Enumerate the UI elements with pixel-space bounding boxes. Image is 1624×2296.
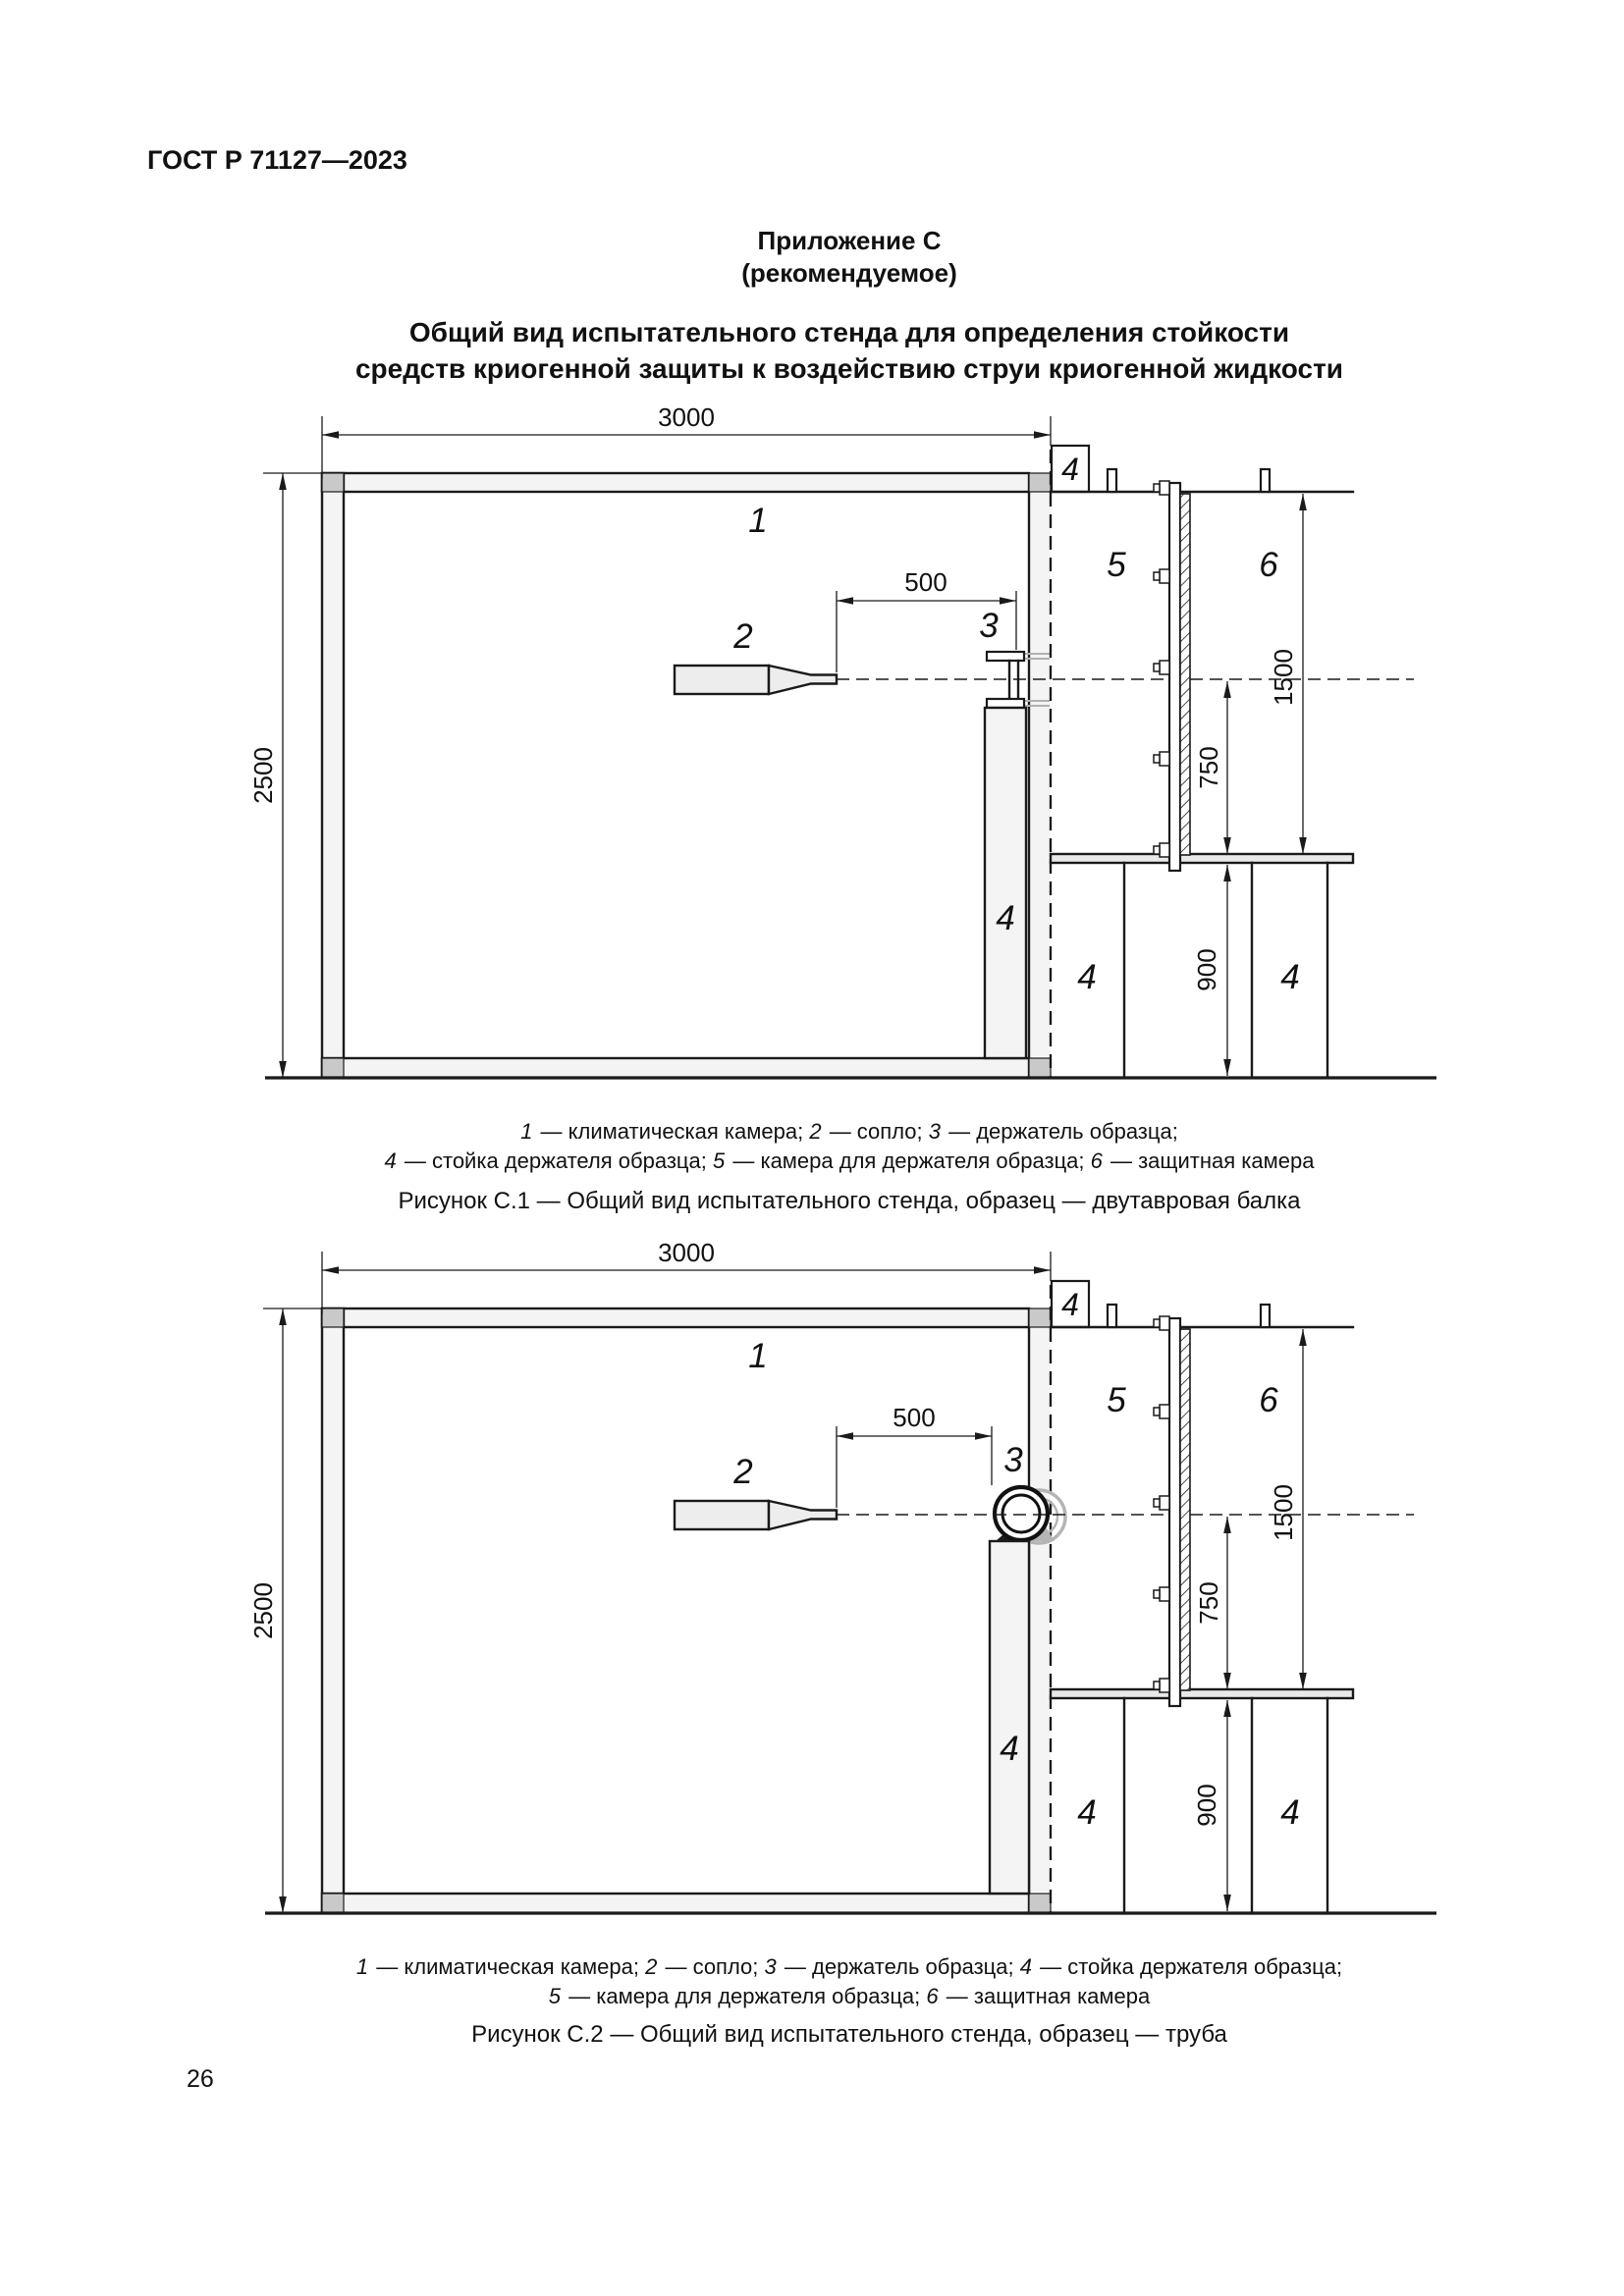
dim-chamber-width-2: 3000: [322, 1238, 1051, 1314]
shelf: [1051, 854, 1353, 863]
label-climatic-chamber: 1: [748, 502, 767, 540]
dim-table-height-2: 900: [1192, 1700, 1231, 1911]
label-holder-stand-column-2: 4: [1000, 1730, 1018, 1768]
dim-nozzle-distance-value: 500: [904, 567, 947, 597]
top-stand-bracket: 4: [1052, 446, 1089, 492]
fig1-legend: 1 — климатическая камера; 2 — сопло; 3 —…: [147, 1117, 1551, 1176]
holder-stand-column: 4: [985, 708, 1026, 1058]
dim-axis-to-shelf-2: 750: [1194, 1517, 1231, 1689]
document-page: ГОСТ Р 71127—2023 Приложение С (рекоменд…: [0, 0, 1624, 2296]
dim-axis-to-shelf: 750: [1194, 681, 1231, 854]
label-holder-stand-column: 4: [996, 899, 1014, 937]
shelf-2: [1051, 1689, 1353, 1698]
dim-nozzle-distance-2: 500: [837, 1403, 992, 1508]
label-nozzle-2: 2: [732, 1453, 752, 1491]
dim-chamber-height-2: 2500: [248, 1308, 324, 1913]
figure-c2-drawing: 4 4: [248, 1238, 1436, 1913]
dim-table-height: 900: [1192, 865, 1231, 1076]
dim-panel-height-value: 1500: [1269, 649, 1298, 706]
page-number: 26: [187, 2065, 214, 2094]
mounting-panel-2: [1154, 1316, 1190, 1706]
dim-table-height-value: 900: [1192, 948, 1221, 990]
label-protective-chamber: 6: [1259, 546, 1278, 584]
label-climatic-chamber-2: 1: [748, 1337, 767, 1375]
dim-chamber-height-value-2: 2500: [248, 1582, 278, 1639]
dim-chamber-height-value: 2500: [248, 747, 278, 804]
panel-bolts: [1154, 481, 1169, 857]
dim-table-height-value-2: 900: [1192, 1784, 1221, 1826]
label-specimen-holder-2: 3: [1003, 1441, 1023, 1479]
label-table-leg-left-2: 4: [1077, 1793, 1096, 1832]
nozzle-2: [675, 1501, 837, 1529]
label-table-leg-left: 4: [1077, 958, 1096, 996]
label-table-leg-right-2: 4: [1280, 1793, 1299, 1832]
dim-nozzle-distance-value-2: 500: [893, 1403, 935, 1432]
fig2-caption: Рисунок С.2 — Общий вид испытательного с…: [147, 2021, 1551, 2049]
label-holder-stand-top: 4: [1061, 452, 1079, 487]
holder-stand-column-2: 4: [990, 1541, 1029, 1894]
nozzle: [675, 666, 837, 694]
climatic-chamber: [322, 473, 1051, 1078]
label-nozzle: 2: [732, 617, 752, 656]
panel-bolts-2: [1154, 1316, 1169, 1692]
fig2-legend-line1: 1 — климатическая камера; 2 — сопло; 3 —…: [147, 1952, 1551, 1982]
label-specimen-holder: 3: [979, 607, 999, 645]
fig1-legend-line2: 4 — стойка держателя образца; 5 — камера…: [147, 1147, 1551, 1176]
dim-chamber-width: 3000: [322, 402, 1051, 479]
climatic-chamber-2: [322, 1308, 1051, 1913]
label-holder-chamber-2: 5: [1107, 1381, 1126, 1419]
dim-chamber-height: 2500: [248, 473, 324, 1078]
dim-panel-height-value-2: 1500: [1269, 1484, 1298, 1541]
label-holder-chamber: 5: [1107, 546, 1126, 584]
roof-line-chambers-2: [1051, 1305, 1353, 1327]
fig2-legend-line2: 5 — камера для держателя образца; 6 — за…: [147, 1982, 1551, 2011]
fig1-caption: Рисунок С.1 — Общий вид испытательного с…: [147, 1188, 1551, 1215]
label-holder-stand-top-2: 4: [1061, 1287, 1079, 1322]
roof-line-chambers: [1051, 469, 1353, 492]
mounting-panel: [1154, 481, 1190, 871]
dim-chamber-width-value-2: 3000: [658, 1238, 715, 1267]
dim-axis-to-shelf-value: 750: [1194, 746, 1223, 788]
figure-c1-drawing: 4 4: [248, 402, 1436, 1078]
dim-axis-to-shelf-value-2: 750: [1194, 1581, 1223, 1624]
fig2-legend: 1 — климатическая камера; 2 — сопло; 3 —…: [147, 1952, 1551, 2011]
fig1-legend-line1: 1 — климатическая камера; 2 — сопло; 3 —…: [147, 1117, 1551, 1147]
label-protective-chamber-2: 6: [1259, 1381, 1278, 1419]
top-stand-bracket-2: 4: [1052, 1281, 1089, 1327]
dim-chamber-width-value: 3000: [658, 402, 715, 432]
label-table-leg-right: 4: [1280, 958, 1299, 996]
